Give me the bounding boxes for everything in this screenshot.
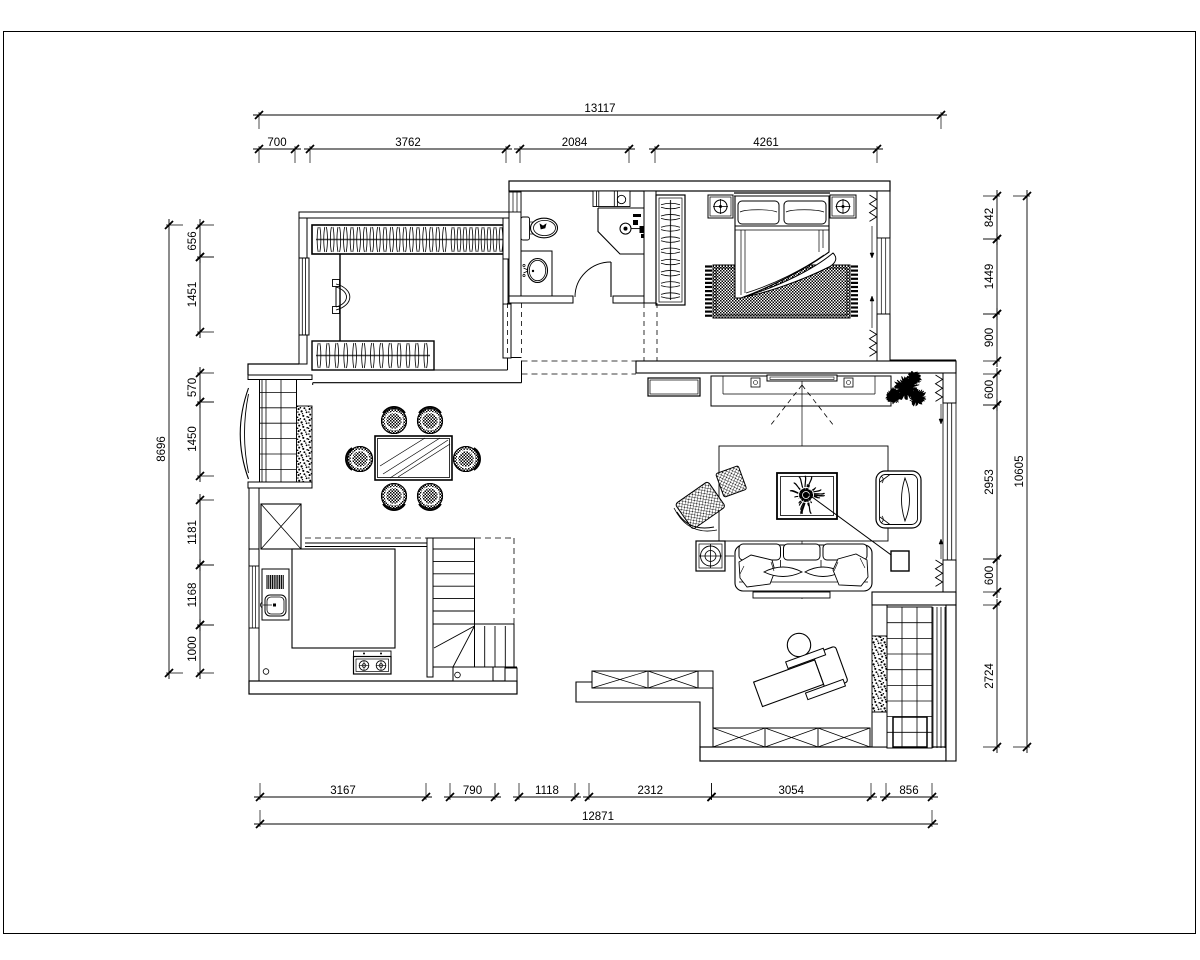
- svg-text:1181: 1181: [187, 520, 199, 545]
- svg-text:600: 600: [984, 566, 996, 585]
- svg-text:4261: 4261: [753, 137, 779, 149]
- svg-text:3054: 3054: [778, 785, 804, 797]
- svg-text:600: 600: [984, 380, 996, 399]
- svg-text:856: 856: [899, 785, 918, 797]
- svg-text:10605: 10605: [1014, 456, 1026, 488]
- svg-text:1118: 1118: [535, 785, 559, 797]
- svg-text:13117: 13117: [584, 103, 615, 115]
- svg-text:900: 900: [984, 328, 996, 347]
- svg-text:3762: 3762: [395, 137, 421, 149]
- svg-text:790: 790: [463, 785, 482, 797]
- svg-text:1450: 1450: [187, 426, 199, 452]
- svg-text:3167: 3167: [330, 785, 356, 797]
- svg-text:1451: 1451: [187, 282, 199, 308]
- svg-text:2724: 2724: [984, 663, 996, 689]
- svg-text:2084: 2084: [562, 137, 588, 149]
- svg-text:2953: 2953: [984, 469, 996, 495]
- svg-text:700: 700: [267, 137, 286, 149]
- svg-text:2312: 2312: [637, 785, 663, 797]
- svg-text:570: 570: [187, 378, 199, 397]
- svg-text:12871: 12871: [582, 811, 614, 823]
- svg-text:842: 842: [984, 208, 996, 227]
- svg-text:656: 656: [187, 231, 199, 250]
- svg-text:1449: 1449: [984, 264, 996, 290]
- svg-text:8696: 8696: [156, 436, 168, 462]
- svg-text:1000: 1000: [187, 636, 199, 662]
- svg-text:1168: 1168: [187, 583, 199, 608]
